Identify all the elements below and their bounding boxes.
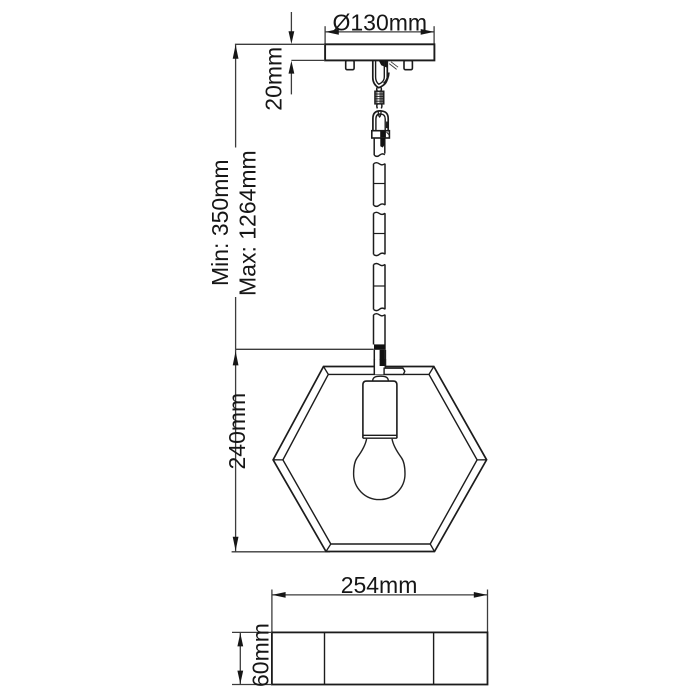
- svg-text:Max: 1264mm: Max: 1264mm: [235, 150, 261, 296]
- svg-text:254mm: 254mm: [341, 572, 418, 598]
- svg-text:Min: 350mm: Min: 350mm: [207, 159, 233, 286]
- svg-text:20mm: 20mm: [260, 47, 286, 111]
- svg-text:60mm: 60mm: [248, 623, 274, 687]
- svg-text:240mm: 240mm: [224, 393, 250, 470]
